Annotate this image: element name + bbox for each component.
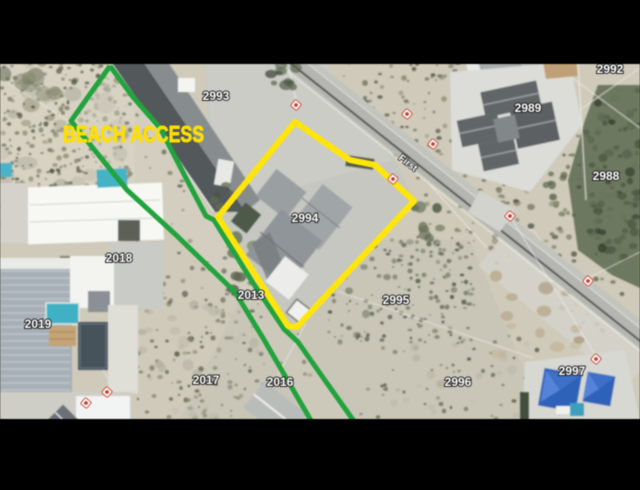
svg-text:2997: 2997: [559, 364, 586, 378]
svg-text:2993: 2993: [203, 89, 230, 103]
svg-text:2016: 2016: [267, 375, 294, 389]
svg-text:2018: 2018: [106, 251, 133, 265]
svg-text:2994: 2994: [292, 211, 319, 225]
svg-text:2996: 2996: [445, 375, 472, 389]
svg-text:2992: 2992: [597, 62, 624, 76]
svg-text:2988: 2988: [593, 169, 620, 183]
svg-text:2017: 2017: [193, 373, 220, 387]
svg-text:2989: 2989: [515, 101, 542, 115]
svg-text:2019: 2019: [25, 317, 52, 331]
svg-text:2995: 2995: [383, 293, 410, 307]
svg-text:BEACH ACCESS: BEACH ACCESS: [63, 121, 204, 147]
svg-text:2013: 2013: [238, 288, 265, 302]
